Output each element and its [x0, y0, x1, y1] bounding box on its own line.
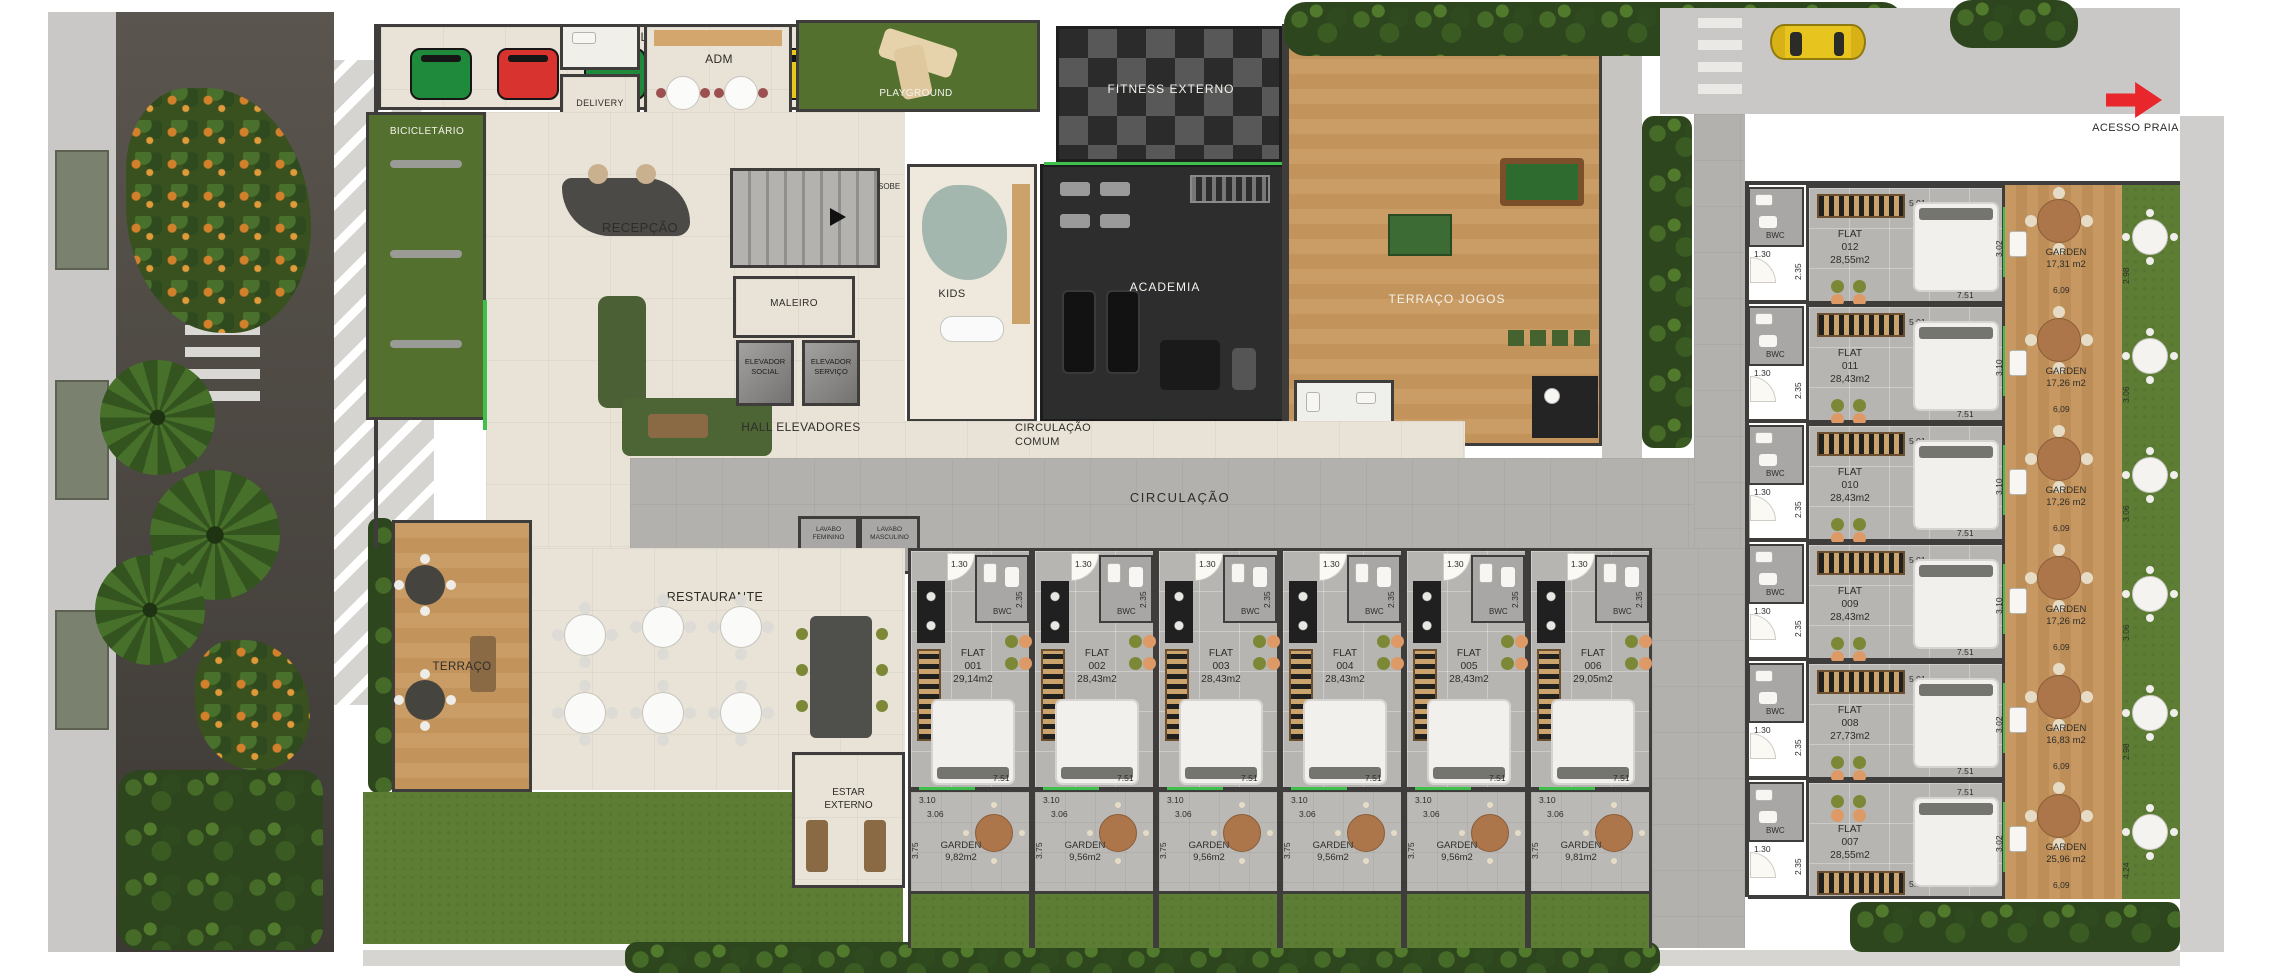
- estar-externo-label: ESTAREXTERNO: [794, 786, 903, 812]
- garden-deck: GARDEN17,26 m2 6,09: [2005, 304, 2122, 423]
- desk-chairs: [1831, 280, 1844, 293]
- wardrobe-hatch: [1817, 670, 1905, 694]
- flat-garden: 3.10 3.06 3.75 GARDEN9,56m2: [1280, 790, 1404, 894]
- gym-bike: [1060, 182, 1090, 196]
- room-label-restaurante: RESTAURANTE: [630, 590, 800, 606]
- garden-table: [2037, 437, 2081, 481]
- gym-bike: [1060, 214, 1090, 228]
- flat-unit-008: BWC 1.30 2.35 5.01 FLAT00827,73m2 7.51 3…: [1748, 661, 2180, 780]
- flat-unit-009: BWC 1.30 2.35 5.01 FLAT00928,43m2 7.51 3…: [1748, 542, 2180, 661]
- garden-deck: GARDEN16,83 m2 6,09: [2005, 661, 2122, 780]
- corridor-comum-floor: [905, 421, 1465, 458]
- dim-235: 2.35: [1793, 620, 1803, 637]
- desk-chairs: [1129, 635, 1142, 648]
- bwc-label: BWC: [1766, 826, 1785, 835]
- gym-bench: [1232, 348, 1256, 390]
- desk-chairs: [1831, 637, 1844, 650]
- restaurant-table: [642, 692, 684, 734]
- flat-unit-002: BWC 1.30 2.35 5.01 FLAT00228,43m2 7.51 3…: [1032, 548, 1156, 948]
- dining-chair: [876, 664, 888, 676]
- garden-word: GARDEN: [2021, 723, 2111, 735]
- wardrobe-hatch: [1817, 194, 1905, 218]
- flat-area: 28,43m2: [1815, 492, 1885, 505]
- garden-word: GARDEN: [925, 840, 997, 852]
- hedge-row-top: [1950, 0, 2078, 48]
- flat-room: 5.01 FLAT01028,43m2 7.51 3.10: [1806, 423, 2005, 542]
- flat-unit-001: BWC 1.30 2.35 5.01 FLAT00129,14m2 7.51 3…: [908, 548, 1032, 948]
- dim-235: 2.35: [1793, 739, 1803, 756]
- flat-area: 28,43m2: [1815, 611, 1885, 624]
- lavabo-word: LAVABO: [800, 526, 857, 534]
- dim-lawn: 2.98: [2121, 743, 2131, 760]
- dining-chair: [796, 664, 808, 676]
- flat-word: FLAT: [1815, 585, 1885, 598]
- terrace-kitchen: [1532, 376, 1598, 438]
- bwc-fixtures: [1355, 563, 1369, 583]
- circulacao-label: CIRCULAÇÃO: [1080, 490, 1280, 506]
- garden-word: GARDEN: [1545, 840, 1617, 852]
- restaurant-table: [720, 606, 762, 648]
- garden-word: GARDEN: [1173, 840, 1245, 852]
- flat-room: 5.01 FLAT00728,55m2 7.51 3.02: [1806, 780, 2005, 899]
- trash-bin-green: [410, 48, 472, 100]
- bwc-label: BWC: [1613, 607, 1632, 616]
- acesso-praia-label: ACESSO PRAIA: [2078, 122, 2193, 136]
- dim-130: 1.30: [1754, 844, 1771, 854]
- elevator-servico: ELEVADORSERVIÇO: [802, 340, 860, 406]
- dim-130: 1.30: [1754, 606, 1771, 616]
- flat-label: FLAT01128,43m2: [1815, 347, 1885, 386]
- flat-area: 28,43m2: [1313, 673, 1377, 686]
- planter-box: [55, 380, 109, 500]
- garden-lawn: 2.98: [2122, 185, 2180, 304]
- garden-area: 9,56m2: [1297, 852, 1369, 864]
- bwc-room: BWC: [1748, 306, 1804, 366]
- headboard: [1919, 684, 1993, 696]
- bwc-label: BWC: [1766, 707, 1785, 716]
- garden-word: GARDEN: [2021, 247, 2111, 259]
- flat-word: FLAT: [1815, 823, 1885, 836]
- garden-label: GARDEN9,82m2: [925, 840, 997, 865]
- restaurant-table: [564, 614, 606, 656]
- dim-130: 1.30: [1754, 487, 1771, 497]
- elevator-social-label-1: ELEVADOR: [745, 357, 785, 366]
- hedge-row-bottom-right: [1850, 902, 2180, 952]
- flat-room: BWC 1.30 2.35 5.01 FLAT00528,43m2 7.51: [1404, 548, 1528, 790]
- feminino-word: FEMININO: [800, 534, 857, 542]
- door-arc: [1750, 376, 1776, 402]
- flat-room: 5.01 FLAT00827,73m2 7.51 3.02: [1806, 661, 2005, 780]
- headboard: [1919, 208, 1993, 220]
- flat-word: FLAT: [1815, 466, 1885, 479]
- bed: [1913, 559, 1999, 649]
- dim-235: 2.35: [1793, 858, 1803, 875]
- headboard: [1919, 327, 1993, 339]
- flat-label: FLAT01028,43m2: [1815, 466, 1885, 505]
- flat-unit-011: BWC 1.30 2.35 5.01 FLAT01128,43m2 7.51 3…: [1748, 304, 2180, 423]
- garden-lawn: 3.06: [2122, 423, 2180, 542]
- bwc-fixtures: [1755, 551, 1773, 563]
- dim-235: 2.35: [1386, 591, 1396, 608]
- garden-deck: GARDEN17,26 m2 6,09: [2005, 542, 2122, 661]
- dim-lawn: 2.98: [2121, 267, 2131, 284]
- room-label-terraco-jogos: TERRAÇO JOGOS: [1372, 292, 1522, 307]
- door-arc: [1750, 852, 1776, 878]
- sidewalk-right: [2180, 116, 2224, 952]
- garden-label: GARDEN9,56m2: [1297, 840, 1369, 865]
- flat-unit-012: BWC 1.30 2.35 5.01 FLAT01228,55m2 7.51 3…: [1748, 185, 2180, 304]
- flat-room: 5.01 FLAT01228,55m2 7.51 3.02: [1806, 185, 2005, 304]
- bwc-label: BWC: [1766, 469, 1785, 478]
- dim-235: 2.35: [1510, 591, 1520, 608]
- person-marker: [588, 164, 608, 184]
- flat-area: 28,43m2: [1189, 673, 1253, 686]
- dim-375: 3.75: [1034, 842, 1044, 859]
- elevator-servico-label-1: ELEVADOR: [811, 357, 851, 366]
- person-marker: [636, 164, 656, 184]
- lavabo-word: LAVABO: [861, 526, 918, 534]
- garden-word: GARDEN: [2021, 366, 2111, 378]
- desk-chairs: [1501, 635, 1514, 648]
- kitchenette: [1165, 581, 1193, 643]
- bwc-fixtures: [1755, 432, 1773, 444]
- garden-table: [2037, 318, 2081, 362]
- bench-seat: [864, 820, 886, 872]
- dining-table-long: [810, 616, 872, 738]
- garden-area: 17,31 m2: [2021, 259, 2111, 271]
- flat-area: 29,05m2: [1561, 673, 1625, 686]
- garden-label: GARDEN9,56m2: [1421, 840, 1493, 865]
- elevator-servico-label-2: SERVIÇO: [814, 367, 848, 376]
- dim-751: 7.51: [1117, 773, 1134, 783]
- dim-306: 3.06: [1299, 809, 1316, 819]
- garden-deck: GARDEN17,31 m2 6,09: [2005, 185, 2122, 304]
- terrace-chair: [1530, 330, 1546, 346]
- room-label-kids: KIDS: [912, 288, 992, 302]
- bwc-fixtures: [1755, 313, 1773, 325]
- restaurant-table: [564, 692, 606, 734]
- lavabo-feminino-label: LAVABOFEMININO: [800, 526, 857, 543]
- kitchenette: [917, 581, 945, 643]
- gym-bike: [1100, 182, 1130, 196]
- flat-word: FLAT: [1561, 647, 1625, 660]
- garden-word: GARDEN: [1297, 840, 1369, 852]
- dim-130: 1.30: [951, 559, 968, 569]
- flat-unit-007: BWC 1.30 2.35 5.01 FLAT00728,55m2 7.51 3…: [1748, 780, 2180, 899]
- garden-label: GARDEN9,81m2: [1545, 840, 1617, 865]
- estar-word: ESTAR: [794, 786, 903, 799]
- sink-fixture: [572, 32, 596, 44]
- dim-130: 1.30: [1754, 368, 1771, 378]
- kitchenette: [1289, 581, 1317, 643]
- bwc-room: BWC: [1748, 782, 1804, 842]
- desk-chairs: [1831, 399, 1844, 412]
- flat-number: 008: [1815, 717, 1885, 730]
- garden-table: [2037, 675, 2081, 719]
- dim-310: 3.10: [1415, 795, 1432, 805]
- flat-word: FLAT: [1437, 647, 1501, 660]
- hedge-strip: [368, 518, 394, 793]
- dim-306: 3.06: [1051, 809, 1068, 819]
- kitchenette: [1041, 581, 1069, 643]
- terrace-table: [405, 680, 445, 720]
- dim-375: 3.75: [1282, 842, 1292, 859]
- bike-rack: [390, 340, 462, 348]
- kitchenette: [1413, 581, 1441, 643]
- bwc-room: BWC: [1748, 544, 1804, 604]
- externo-word: EXTERNO: [794, 799, 903, 812]
- door-arc: [1750, 257, 1776, 283]
- flat-label: FLAT00728,55m2: [1815, 823, 1885, 862]
- bench-seat: [806, 820, 828, 872]
- bwc-fixtures: [1603, 563, 1617, 583]
- bed: [1913, 797, 1999, 887]
- elevator-social-label-2: SOCIAL: [751, 367, 779, 376]
- garden-label: GARDEN17,31 m2: [2021, 247, 2111, 272]
- flat-unit-006: BWC 1.30 2.35 5.01 FLAT00629,05m2 7.51 3…: [1528, 548, 1652, 948]
- flat-label: FLAT00629,05m2: [1561, 647, 1625, 686]
- flat-area: 29,14m2: [941, 673, 1005, 686]
- dim-310: 3.10: [1043, 795, 1060, 805]
- flat-number: 001: [941, 660, 1005, 673]
- dim-130: 1.30: [1323, 559, 1340, 569]
- room-label-recepcao: RECEPÇÃO: [560, 220, 720, 236]
- dim-751: 7.51: [1957, 290, 1974, 300]
- desk-chairs: [1377, 635, 1390, 648]
- dim-310: 3.10: [1167, 795, 1184, 805]
- gym-bike: [1100, 214, 1130, 228]
- treadmill: [1106, 290, 1140, 374]
- restaurant-table: [720, 692, 762, 734]
- circulacao-comum-line1: CIRCULAÇÃO: [1015, 421, 1135, 435]
- treadmill: [1062, 290, 1096, 374]
- lawn-table: [2132, 338, 2168, 374]
- dumbbell-rack: [1190, 175, 1270, 203]
- flat-unit-005: BWC 1.30 2.35 5.01 FLAT00528,43m2 7.51 3…: [1404, 548, 1528, 948]
- wardrobe-hatch: [1817, 551, 1905, 575]
- dim-306: 3.06: [927, 809, 944, 819]
- lawn-table: [2132, 219, 2168, 255]
- toilet-fixture: [1306, 392, 1320, 412]
- floor-plan: LIXO BICICLETÁRIO DELIVERY ADM PLAYGROUN…: [0, 0, 2280, 973]
- room-label-delivery: DELIVERY: [560, 98, 640, 109]
- dim-751: 7.51: [1489, 773, 1506, 783]
- flat-number: 002: [1065, 660, 1129, 673]
- dim-235: 2.35: [1793, 382, 1803, 399]
- desk-chairs: [1625, 635, 1638, 648]
- garden-area: 17,26 m2: [2021, 616, 2111, 628]
- lawn-table: [2132, 814, 2168, 850]
- flat-area: 28,43m2: [1065, 673, 1129, 686]
- flat-number: 006: [1561, 660, 1625, 673]
- flat-lawn: [1528, 894, 1652, 948]
- bwc-fixtures: [1479, 563, 1493, 583]
- bwc-label: BWC: [1241, 607, 1260, 616]
- trash-bin-red: [497, 48, 559, 100]
- terrace-chair: [1552, 330, 1568, 346]
- dim-609: 6,09: [2053, 523, 2070, 533]
- circulacao-comum-line2: COMUM: [1015, 435, 1135, 449]
- garden-area: 9,56m2: [1049, 852, 1121, 864]
- garden-table: [2037, 794, 2081, 838]
- flat-label: FLAT00228,43m2: [1065, 647, 1129, 686]
- room-service-bath: [560, 24, 640, 70]
- garden-area: 9,56m2: [1173, 852, 1245, 864]
- kids-table: [940, 316, 1004, 342]
- planter-box: [55, 150, 109, 270]
- headboard: [1919, 803, 1993, 815]
- flat-number: 004: [1313, 660, 1377, 673]
- lawn-table: [2132, 576, 2168, 612]
- flat-number: 010: [1815, 479, 1885, 492]
- garden-label: GARDEN17,26 m2: [2021, 485, 2111, 510]
- room-label-academia: ACADEMIA: [1100, 280, 1230, 295]
- dim-751: 7.51: [1241, 773, 1258, 783]
- flat-garden: 3.10 3.06 3.75 GARDEN9,56m2: [1404, 790, 1528, 894]
- flat-garden: 3.10 3.06 3.75 GARDEN9,82m2: [908, 790, 1032, 894]
- hedge-strip-vertical: [1642, 116, 1692, 448]
- stairs: [730, 168, 880, 268]
- flat-room: 5.01 FLAT01128,43m2 7.51 3.10: [1806, 304, 2005, 423]
- bwc-fixtures: [1107, 563, 1121, 583]
- meeting-table: [666, 76, 700, 110]
- garden-area: 16,83 m2: [2021, 735, 2111, 747]
- bwc-room: BWC: [1595, 555, 1649, 623]
- flat-unit-010: BWC 1.30 2.35 5.01 FLAT01028,43m2 7.51 3…: [1748, 423, 2180, 542]
- garden-lawn: 3.06: [2122, 304, 2180, 423]
- dim-609: 6,09: [2053, 642, 2070, 652]
- bwc-label: BWC: [1365, 607, 1384, 616]
- dim-130: 1.30: [1571, 559, 1588, 569]
- bwc-fixtures: [983, 563, 997, 583]
- dim-306: 3.06: [1547, 809, 1564, 819]
- dim-235: 2.35: [1014, 591, 1024, 608]
- desk-chairs: [1831, 518, 1844, 531]
- dim-751: 7.51: [993, 773, 1010, 783]
- dim-235: 2.35: [1793, 263, 1803, 280]
- flat-unit-003: BWC 1.30 2.35 5.01 FLAT00328,43m2 7.51 3…: [1156, 548, 1280, 948]
- room-label-fitness-externo: FITNESS EXTERNO: [1086, 82, 1256, 97]
- flat-lawn: [1404, 894, 1528, 948]
- corridor-vertical-lower: [1652, 548, 1745, 948]
- dining-chair: [876, 628, 888, 640]
- palm-tree: [95, 555, 205, 665]
- dim-609: 6,09: [2053, 285, 2070, 295]
- flat-number: 005: [1437, 660, 1501, 673]
- flat-garden: 3.10 3.06 3.75 GARDEN9,56m2: [1156, 790, 1280, 894]
- bwc-label: BWC: [1766, 231, 1785, 240]
- garden-lawn: 4.24: [2122, 780, 2180, 899]
- garden-word: GARDEN: [2021, 604, 2111, 616]
- flat-area: 27,73m2: [1815, 730, 1885, 743]
- garden-area: 17,26 m2: [2021, 497, 2111, 509]
- dim-130: 1.30: [1754, 725, 1771, 735]
- headboard: [1919, 565, 1993, 577]
- flat-word: FLAT: [1815, 704, 1885, 717]
- room-bicicletario: [366, 112, 486, 420]
- dim-375: 3.75: [1406, 842, 1416, 859]
- restaurant-table: [642, 606, 684, 648]
- dim-lawn: 3.06: [2121, 505, 2131, 522]
- flat-label: FLAT00328,43m2: [1189, 647, 1253, 686]
- flat-label: FLAT00528,43m2: [1437, 647, 1501, 686]
- terrace-chair: [1508, 330, 1524, 346]
- bwc-label: BWC: [1766, 588, 1785, 597]
- kids-counter: [1012, 184, 1030, 324]
- flat-room: BWC 1.30 2.35 5.01 FLAT00228,43m2 7.51: [1032, 548, 1156, 790]
- flat-lawn: [1032, 894, 1156, 948]
- dim-609: 6,09: [2053, 761, 2070, 771]
- garden-lawn: 2.98: [2122, 661, 2180, 780]
- bench-seat: [648, 414, 708, 438]
- bwc-room: BWC: [975, 555, 1029, 623]
- bwc-room: BWC: [1099, 555, 1153, 623]
- dim-751: 7.51: [1957, 409, 1974, 419]
- flat-word: FLAT: [1313, 647, 1377, 660]
- wardrobe-hatch: [1817, 313, 1905, 337]
- flat-room: 5.01 FLAT00928,43m2 7.51 3.10: [1806, 542, 2005, 661]
- bike-rack: [390, 250, 462, 258]
- bike-rack: [390, 160, 462, 168]
- lawn-table: [2132, 695, 2168, 731]
- bwc-label: BWC: [993, 607, 1012, 616]
- sink-fixture: [1356, 392, 1376, 404]
- flat-room: BWC 1.30 2.35 5.01 FLAT00129,14m2 7.51: [908, 548, 1032, 790]
- flat-area: 28,43m2: [1437, 673, 1501, 686]
- dim-130: 1.30: [1447, 559, 1464, 569]
- palm-tree: [100, 360, 215, 475]
- flat-area: 28,43m2: [1815, 373, 1885, 386]
- flat-unit-004: BWC 1.30 2.35 5.01 FLAT00428,43m2 7.51 3…: [1280, 548, 1404, 948]
- garden-label: GARDEN17,26 m2: [2021, 604, 2111, 629]
- circulacao-comum-label: CIRCULAÇÃOCOMUM: [1015, 421, 1135, 450]
- bwc-fixtures: [1755, 670, 1773, 682]
- garden-area: 25,96 m2: [2021, 854, 2111, 866]
- flat-label: FLAT00827,73m2: [1815, 704, 1885, 743]
- dim-310: 3.10: [1539, 795, 1556, 805]
- flat-word: FLAT: [1189, 647, 1253, 660]
- dim-lawn: 3.06: [2121, 624, 2131, 641]
- dim-130: 1.30: [1075, 559, 1092, 569]
- wardrobe-hatch: [1817, 432, 1905, 456]
- garden-area: 9,81m2: [1545, 852, 1617, 864]
- flat-label: FLAT00928,43m2: [1815, 585, 1885, 624]
- meeting-table: [724, 76, 758, 110]
- hall-elevadores-label: HALL ELEVADORES: [716, 420, 886, 435]
- garden-label: GARDEN17,26 m2: [2021, 366, 2111, 391]
- terrace-table: [405, 565, 445, 605]
- garden-word: GARDEN: [2021, 485, 2111, 497]
- garden-deck: GARDEN25,96 m2 6,09: [2005, 780, 2122, 899]
- flat-number: 007: [1815, 836, 1885, 849]
- flat-area: 28,55m2: [1815, 254, 1885, 267]
- dim-lawn: 4.24: [2121, 862, 2131, 879]
- door-arc: [1750, 614, 1776, 640]
- bwc-label: BWC: [1489, 607, 1508, 616]
- dim-310: 3.10: [1291, 795, 1308, 805]
- flat-room: BWC 1.30 2.35 5.01 FLAT00428,43m2 7.51: [1280, 548, 1404, 790]
- dim-306: 3.06: [1423, 809, 1440, 819]
- flat-garden: 3.10 3.06 3.75 GARDEN9,56m2: [1032, 790, 1156, 894]
- room-terraco: [392, 520, 532, 792]
- flat-garden: 3.10 3.06 3.75 GARDEN9,81m2: [1528, 790, 1652, 894]
- dim-609: 6,09: [2053, 880, 2070, 890]
- corridor-vertical: [1694, 114, 1745, 548]
- dim-306: 3.06: [1175, 809, 1192, 819]
- sink-fixture: [1544, 388, 1560, 404]
- bwc-fixtures: [1231, 563, 1245, 583]
- garden-area: 9,82m2: [925, 852, 997, 864]
